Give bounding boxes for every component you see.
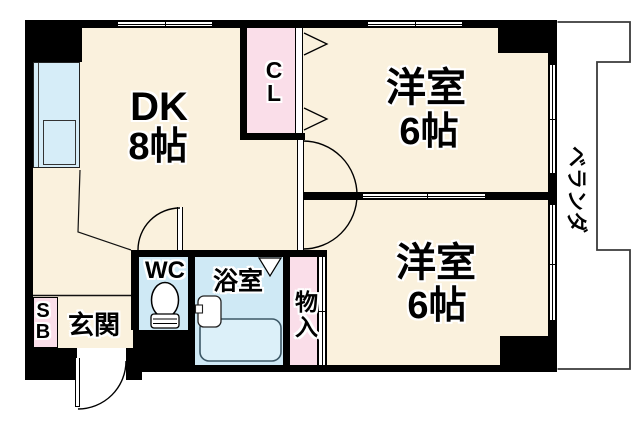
shoe-box-label: SB: [36, 301, 50, 343]
wall-left: [25, 20, 33, 380]
window-dk: [118, 20, 212, 28]
wall-top-1: [82, 20, 118, 28]
window-veranda-2: [548, 205, 557, 320]
window-tick: [548, 264, 557, 265]
sliding-door-tick: [317, 311, 327, 312]
sliding-door-track: [363, 196, 485, 197]
west-room-2-label: 洋室: [396, 243, 476, 283]
wall-corner-top-left: [25, 20, 82, 62]
floor-plan: DK 8帖 洋室 6帖 洋室 6帖 CL WC 浴室 物入 玄関 SB ベランダ: [0, 0, 640, 428]
wall-right-2: [548, 173, 557, 205]
bathroom-label: 浴室: [213, 270, 263, 295]
wall-room-divider-1: [303, 192, 363, 200]
closet-folding-door: [295, 28, 303, 133]
window-tick: [415, 20, 416, 28]
toilet-door-panel: [177, 207, 183, 250]
wall-closet-left: [240, 28, 247, 140]
closet-label-line1: C: [266, 59, 283, 82]
kitchen-sink: [43, 120, 76, 165]
room-door-panels: [297, 140, 304, 250]
wall-closet-bottom: [240, 133, 305, 140]
wall-wet-area-top: [131, 250, 327, 257]
dk-label: DK: [130, 87, 188, 127]
entrance-doorway: [77, 348, 126, 380]
wall-right-3: [548, 320, 557, 365]
window-veranda-1: [548, 65, 557, 173]
kitchen-counter-edge: [38, 63, 39, 167]
closet-label-line2: L: [266, 82, 283, 105]
shoe-box-label-line2: B: [36, 322, 50, 343]
shoe-box-label-line1: S: [36, 301, 50, 322]
storage-label: 物入: [292, 290, 317, 340]
wall-toilet-bath: [188, 250, 195, 365]
window-sash-line: [552, 205, 553, 320]
entrance-label: 玄関: [68, 312, 120, 338]
sliding-door-room-divider: [363, 192, 485, 200]
west-room-1-size-label: 6帖: [399, 113, 458, 151]
west-room-1-label: 洋室: [386, 68, 466, 108]
toilet-label: WC: [145, 259, 185, 283]
wall-top-2: [212, 20, 368, 28]
window-tick: [165, 20, 166, 28]
veranda-label: ベランダ: [566, 146, 587, 234]
window-west-room-1: [368, 20, 462, 28]
wall-toilet-left: [131, 250, 139, 330]
sliding-door-tick: [427, 192, 428, 200]
closet-label: CL: [266, 59, 283, 105]
wall-bottom: [133, 365, 557, 372]
wall-bottom-left-block: [25, 348, 77, 380]
sliding-door-storage: [317, 257, 327, 365]
window-tick: [548, 119, 557, 120]
wall-bath-storage: [283, 250, 290, 365]
entrance-door-panel: [75, 358, 80, 407]
wall-corner-top-right: [498, 20, 557, 53]
dk-size-label: 8帖: [128, 128, 187, 166]
wall-right-1: [548, 53, 557, 65]
west-room-2-size-label: 6帖: [407, 287, 466, 325]
wall-room-divider-2: [485, 192, 548, 200]
